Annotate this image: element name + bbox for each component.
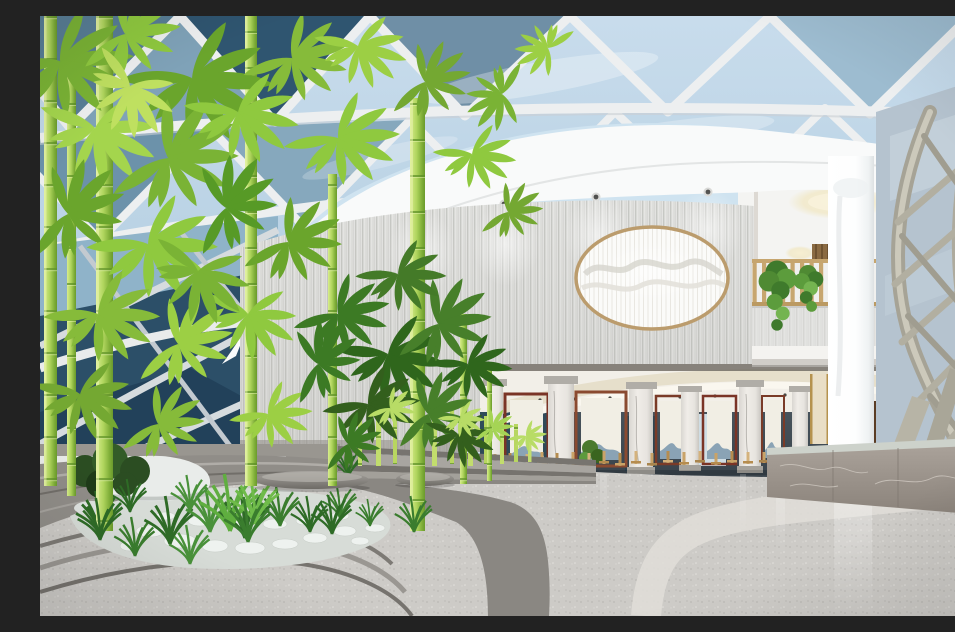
vignette xyxy=(40,16,955,616)
atrium-rendering xyxy=(40,16,955,616)
